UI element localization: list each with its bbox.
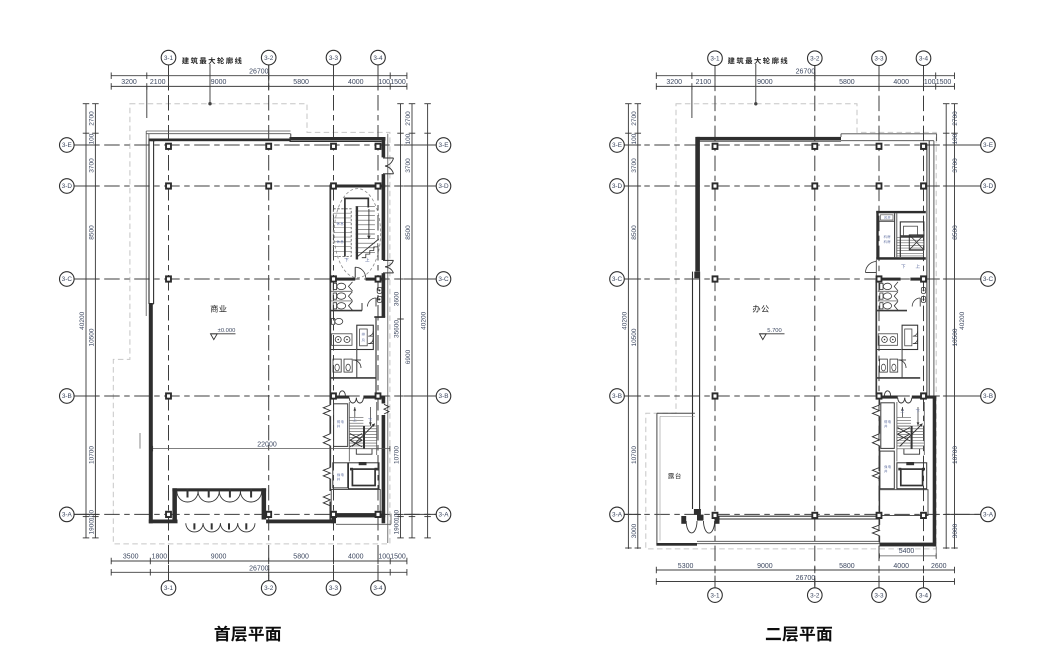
svg-text:10700: 10700 xyxy=(631,446,638,464)
svg-text:3-2: 3-2 xyxy=(264,585,274,592)
svg-text:2100: 2100 xyxy=(696,79,712,86)
svg-text:2700: 2700 xyxy=(88,111,95,126)
svg-text:4000: 4000 xyxy=(348,554,364,561)
svg-text:4000: 4000 xyxy=(893,563,909,570)
svg-text:100: 100 xyxy=(952,133,959,144)
svg-text:3-E: 3-E xyxy=(439,142,449,149)
svg-text:100: 100 xyxy=(405,133,412,144)
svg-text:3500: 3500 xyxy=(123,554,139,561)
svg-text:26700: 26700 xyxy=(796,575,816,582)
svg-text:3-E: 3-E xyxy=(62,142,72,149)
svg-text:9000: 9000 xyxy=(757,79,773,86)
svg-text:1800: 1800 xyxy=(152,554,168,561)
svg-text:3-D: 3-D xyxy=(438,183,449,190)
svg-text:100: 100 xyxy=(88,509,95,520)
svg-text:10700: 10700 xyxy=(393,446,400,464)
svg-text:3-4: 3-4 xyxy=(373,585,383,592)
svg-text:3-C: 3-C xyxy=(612,276,623,283)
svg-text:9000: 9000 xyxy=(211,79,227,86)
svg-text:3-E: 3-E xyxy=(612,142,622,149)
svg-text:3-3: 3-3 xyxy=(874,55,884,62)
svg-text:100: 100 xyxy=(631,133,638,144)
svg-text:3-1: 3-1 xyxy=(710,592,720,599)
svg-text:100: 100 xyxy=(378,79,390,86)
svg-text:5800: 5800 xyxy=(839,79,855,86)
svg-text:3-B: 3-B xyxy=(439,393,449,400)
svg-text:3-4: 3-4 xyxy=(919,592,929,599)
svg-text:3-1: 3-1 xyxy=(710,55,720,62)
svg-text:10700: 10700 xyxy=(952,446,959,464)
svg-text:3-1: 3-1 xyxy=(164,585,174,592)
svg-text:8500: 8500 xyxy=(952,225,959,240)
svg-text:3-B: 3-B xyxy=(612,393,622,400)
svg-text:10500: 10500 xyxy=(952,328,959,346)
svg-text:26700: 26700 xyxy=(249,565,269,572)
svg-text:2100: 2100 xyxy=(150,79,166,86)
svg-text:2700: 2700 xyxy=(405,111,412,126)
svg-text:1500: 1500 xyxy=(390,554,406,561)
svg-text:9000: 9000 xyxy=(211,554,227,561)
svg-text:22000: 22000 xyxy=(257,441,277,448)
svg-text:1500: 1500 xyxy=(936,79,952,86)
svg-text:2700: 2700 xyxy=(631,111,638,126)
svg-text:3-E: 3-E xyxy=(983,142,993,149)
svg-text:3000: 3000 xyxy=(631,523,638,538)
svg-text:3-C: 3-C xyxy=(438,276,449,283)
svg-text:3600: 3600 xyxy=(393,291,400,306)
svg-text:3-3: 3-3 xyxy=(329,55,339,62)
svg-text:5800: 5800 xyxy=(839,563,855,570)
svg-text:5800: 5800 xyxy=(293,79,309,86)
svg-text:3-D: 3-D xyxy=(983,183,994,190)
svg-text:3-C: 3-C xyxy=(983,276,994,283)
svg-text:5400: 5400 xyxy=(899,548,915,555)
svg-text:3-A: 3-A xyxy=(62,512,73,519)
svg-text:3-3: 3-3 xyxy=(329,585,339,592)
svg-text:26700: 26700 xyxy=(796,69,816,76)
svg-text:100: 100 xyxy=(924,79,936,86)
svg-text:10500: 10500 xyxy=(631,328,638,346)
svg-text:5800: 5800 xyxy=(293,554,309,561)
svg-text:100: 100 xyxy=(88,133,95,144)
svg-text:3-3: 3-3 xyxy=(874,592,884,599)
svg-text:1500: 1500 xyxy=(390,79,406,86)
svg-text:3-1: 3-1 xyxy=(164,55,174,62)
svg-text:26700: 26700 xyxy=(249,69,269,76)
svg-text:40200: 40200 xyxy=(959,311,966,329)
svg-text:5.700: 5.700 xyxy=(767,328,782,334)
svg-text:3-D: 3-D xyxy=(612,183,623,190)
svg-text:4000: 4000 xyxy=(893,79,909,86)
svg-text:3-D: 3-D xyxy=(62,183,73,190)
svg-text:3000: 3000 xyxy=(952,523,959,538)
svg-text:1900: 1900 xyxy=(393,520,400,535)
svg-text:3-2: 3-2 xyxy=(810,55,820,62)
svg-text:4000: 4000 xyxy=(348,79,364,86)
svg-text:3-4: 3-4 xyxy=(919,55,929,62)
svg-text:3-A: 3-A xyxy=(612,512,623,519)
svg-text:3-4: 3-4 xyxy=(373,55,383,62)
svg-text:3-A: 3-A xyxy=(439,512,450,519)
svg-text:8500: 8500 xyxy=(631,225,638,240)
svg-text:2600: 2600 xyxy=(931,563,947,570)
svg-text:35600: 35600 xyxy=(393,320,400,338)
svg-text:1900: 1900 xyxy=(88,520,95,535)
svg-text:10500: 10500 xyxy=(88,328,95,346)
svg-text:2700: 2700 xyxy=(952,111,959,126)
svg-text:3700: 3700 xyxy=(88,158,95,173)
svg-text:3200: 3200 xyxy=(121,79,137,86)
svg-text:8500: 8500 xyxy=(405,225,412,240)
svg-text:8500: 8500 xyxy=(88,225,95,240)
svg-text:100: 100 xyxy=(378,554,390,561)
svg-text:3700: 3700 xyxy=(631,158,638,173)
svg-text:6900: 6900 xyxy=(405,349,412,364)
svg-text:±0.000: ±0.000 xyxy=(218,328,236,334)
svg-text:100: 100 xyxy=(393,509,400,520)
svg-text:3200: 3200 xyxy=(666,79,682,86)
svg-text:3-C: 3-C xyxy=(62,276,73,283)
svg-text:10700: 10700 xyxy=(88,446,95,464)
svg-text:9000: 9000 xyxy=(757,563,773,570)
svg-text:3-2: 3-2 xyxy=(264,55,274,62)
svg-text:40200: 40200 xyxy=(421,311,428,329)
svg-text:3700: 3700 xyxy=(952,158,959,173)
svg-text:40200: 40200 xyxy=(79,311,86,329)
svg-text:3700: 3700 xyxy=(405,158,412,173)
svg-text:3-B: 3-B xyxy=(983,393,993,400)
svg-text:5300: 5300 xyxy=(678,563,694,570)
svg-text:3-2: 3-2 xyxy=(810,592,820,599)
svg-text:3-B: 3-B xyxy=(62,393,72,400)
svg-text:3-A: 3-A xyxy=(983,512,994,519)
svg-text:40200: 40200 xyxy=(621,311,628,329)
